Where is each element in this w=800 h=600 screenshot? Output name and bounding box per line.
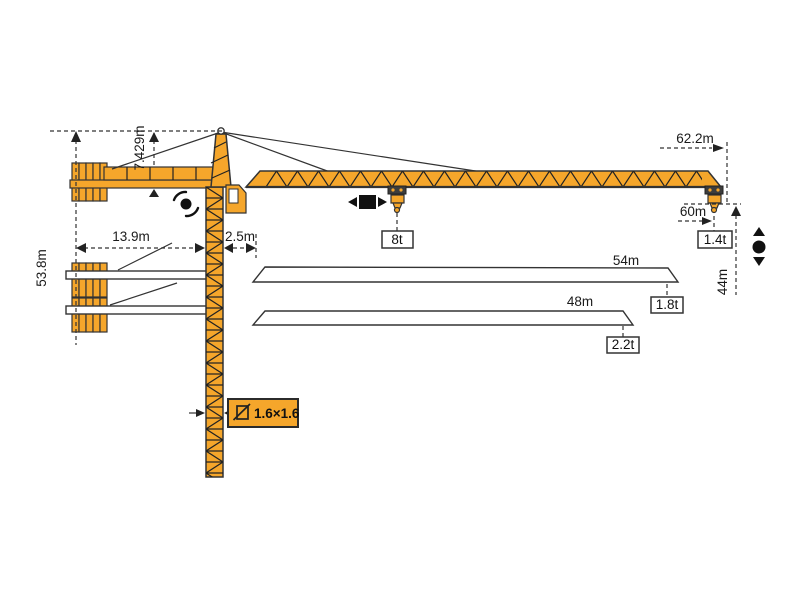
slewing-rotation-icon xyxy=(174,192,198,216)
counterjib-girder xyxy=(104,167,218,180)
alt-counterjib-1 xyxy=(66,243,208,297)
alt-counterjib-beam-1 xyxy=(66,271,208,279)
jib xyxy=(246,171,721,187)
counterjib-pendant xyxy=(112,132,221,169)
trolley-tip xyxy=(705,186,723,213)
jib-pendant-short xyxy=(221,132,330,172)
crane-diagram: 53.8m 7.429m 13.9m 2.5m 62.2m 60m 44m xyxy=(0,0,800,600)
crane-diagram-svg: 53.8m 7.429m 13.9m 2.5m 62.2m 60m 44m xyxy=(0,0,800,600)
dim-hoist-height: 44m xyxy=(715,206,741,295)
dim-total-height-label: 53.8m xyxy=(34,249,49,287)
capacity-max: 8t xyxy=(382,213,413,248)
jib-option-48m-label: 48m xyxy=(567,294,593,309)
tower-head xyxy=(211,128,231,187)
hook-tip xyxy=(712,208,717,213)
capacity-tip-label: 1.4t xyxy=(704,232,727,247)
operator-cab xyxy=(226,185,246,213)
jib-option-54m: 54m 1.8t xyxy=(253,253,683,313)
counterweight-stack-alt2 xyxy=(72,298,107,332)
alt-counterjib-beam-2 xyxy=(66,306,208,314)
jib-option-48m-capacity: 2.2t xyxy=(612,337,635,352)
cab-window xyxy=(229,189,238,203)
capacity-max-label: 8t xyxy=(391,232,403,247)
jib-option-48m: 48m 2.2t xyxy=(253,294,639,353)
trolley-mid xyxy=(388,186,406,213)
leader-line-1 xyxy=(118,243,172,270)
dim-tip-radius: 60m xyxy=(678,204,712,225)
tower-mast xyxy=(206,187,223,477)
dim-rear-offset: 2.5m xyxy=(224,229,256,258)
jib-option-54m-capacity: 1.8t xyxy=(656,297,679,312)
dim-counterjib-radius: 13.9m xyxy=(76,229,205,253)
dim-tip-radius-label: 60m xyxy=(680,204,706,219)
hook-mid xyxy=(395,208,400,213)
mast-section-label: 1.6×1.6 xyxy=(254,406,300,421)
dim-tower-head-label: 7.429m xyxy=(132,125,147,170)
dim-counterjib-radius-label: 13.9m xyxy=(112,229,150,244)
trolley-travel-icon xyxy=(348,195,387,209)
hoist-up-down-icon xyxy=(753,227,766,266)
counterjib-beam xyxy=(70,180,220,188)
counterweight-stack-alt1 xyxy=(72,263,107,297)
leader-line-2 xyxy=(110,283,177,305)
jib-option-54m-label: 54m xyxy=(613,253,639,268)
dim-max-radius-label: 62.2m xyxy=(676,131,714,146)
dim-hoist-height-label: 44m xyxy=(715,269,730,295)
dim-rear-offset-label: 2.5m xyxy=(225,229,255,244)
jib-pendant-long xyxy=(221,132,482,172)
